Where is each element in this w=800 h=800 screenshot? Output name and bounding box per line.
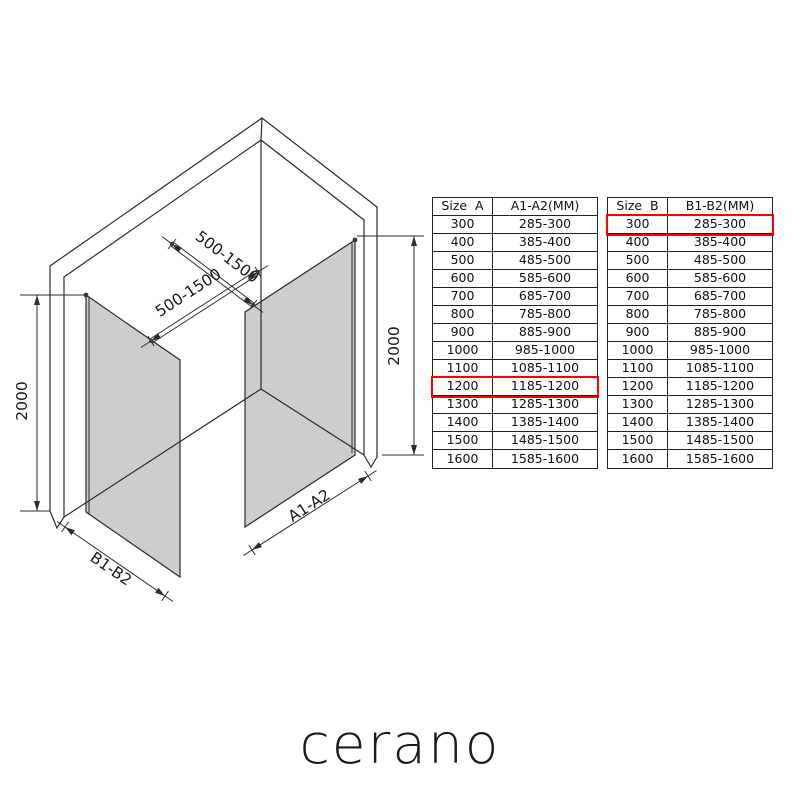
table-cell: 985-1000 xyxy=(668,342,772,359)
panel-b-width-label: B1-B2 xyxy=(87,548,135,589)
column-header: Size B xyxy=(608,198,668,215)
table-cell: 1300 xyxy=(433,396,493,413)
table-cell: 400 xyxy=(608,234,668,251)
table-cell: 700 xyxy=(433,288,493,305)
table-cell: 1400 xyxy=(433,414,493,431)
size-table-a: Size AA1-A2(MM)300285-300400385-40050048… xyxy=(432,197,598,469)
table-cell: 1185-1200 xyxy=(668,378,772,395)
table-cell: 685-700 xyxy=(493,288,597,305)
table-cell: 885-900 xyxy=(493,324,597,341)
table-row: 13001285-1300 xyxy=(608,396,772,414)
left-wall-edge xyxy=(50,266,64,528)
table-row: 12001185-1200 xyxy=(433,378,597,396)
table-row: 16001585-1600 xyxy=(608,450,772,468)
table-row: 500485-500 xyxy=(433,252,597,270)
table-cell: 800 xyxy=(433,306,493,323)
table-cell: 385-400 xyxy=(493,234,597,251)
table-header-row: Size AA1-A2(MM) xyxy=(433,198,597,216)
brand-logo: cerano xyxy=(0,712,800,776)
table-cell: 285-300 xyxy=(493,216,597,233)
column-header: A1-A2(MM) xyxy=(493,198,597,215)
table-row: 700685-700 xyxy=(433,288,597,306)
table-cell: 500 xyxy=(608,252,668,269)
table-cell: 900 xyxy=(608,324,668,341)
table-cell: 1000 xyxy=(433,342,493,359)
wall-bracket-right xyxy=(353,238,358,243)
table-cell: 285-300 xyxy=(668,216,772,233)
table-row: 400385-400 xyxy=(433,234,597,252)
table-row: 13001285-1300 xyxy=(433,396,597,414)
height-label-left: 2000 xyxy=(13,381,31,420)
table-row: 700685-700 xyxy=(608,288,772,306)
table-cell: 1485-1500 xyxy=(493,432,597,449)
table-cell: 785-800 xyxy=(493,306,597,323)
table-cell: 1085-1100 xyxy=(668,360,772,377)
table-cell: 1400 xyxy=(608,414,668,431)
table-row: 11001085-1100 xyxy=(433,360,597,378)
table-cell: 1285-1300 xyxy=(668,396,772,413)
table-cell: 300 xyxy=(608,216,668,233)
table-row: 300285-300 xyxy=(608,216,772,234)
table-cell: 685-700 xyxy=(668,288,772,305)
size-table-b: Size BB1-B2(MM)300285-300400385-40050048… xyxy=(607,197,773,469)
table-cell: 785-800 xyxy=(668,306,772,323)
right-wall-edge xyxy=(364,207,377,467)
table-row: 600585-600 xyxy=(608,270,772,288)
table-row: 400385-400 xyxy=(608,234,772,252)
table-cell: 800 xyxy=(608,306,668,323)
table-row: 11001085-1100 xyxy=(608,360,772,378)
table-cell: 1585-1600 xyxy=(668,450,772,468)
table-cell: 1600 xyxy=(608,450,668,468)
table-row: 14001385-1400 xyxy=(433,414,597,432)
table-cell: 585-600 xyxy=(493,270,597,287)
table-cell: 385-400 xyxy=(668,234,772,251)
table-row: 15001485-1500 xyxy=(433,432,597,450)
table-cell: 1085-1100 xyxy=(493,360,597,377)
table-row: 800785-800 xyxy=(608,306,772,324)
table-cell: 1000 xyxy=(608,342,668,359)
table-header-row: Size BB1-B2(MM) xyxy=(608,198,772,216)
product-spec-sheet: 500-1500 500-1500 2000 2000 xyxy=(0,0,800,800)
table-cell: 1500 xyxy=(433,432,493,449)
table-cell: 585-600 xyxy=(668,270,772,287)
table-cell: 985-1000 xyxy=(493,342,597,359)
table-cell: 1185-1200 xyxy=(493,378,597,395)
column-header: B1-B2(MM) xyxy=(668,198,772,215)
bar-length-label-bottom: 500-1500 xyxy=(152,265,224,321)
table-row: 900885-900 xyxy=(433,324,597,342)
table-cell: 1300 xyxy=(608,396,668,413)
table-cell: 900 xyxy=(433,324,493,341)
table-row: 600585-600 xyxy=(433,270,597,288)
table-cell: 300 xyxy=(433,216,493,233)
column-header: Size A xyxy=(433,198,493,215)
table-cell: 1585-1600 xyxy=(493,450,597,468)
table-row: 14001385-1400 xyxy=(608,414,772,432)
table-row: 1000985-1000 xyxy=(608,342,772,360)
dim-height-right: 2000 xyxy=(357,236,424,455)
table-row: 12001185-1200 xyxy=(608,378,772,396)
table-cell: 500 xyxy=(433,252,493,269)
table-cell: 1600 xyxy=(433,450,493,468)
table-cell: 600 xyxy=(608,270,668,287)
table-cell: 1200 xyxy=(608,378,668,395)
table-row: 900885-900 xyxy=(608,324,772,342)
table-cell: 1485-1500 xyxy=(668,432,772,449)
table-row: 15001485-1500 xyxy=(608,432,772,450)
table-row: 16001585-1600 xyxy=(433,450,597,468)
table-cell: 1385-1400 xyxy=(668,414,772,431)
table-cell: 485-500 xyxy=(493,252,597,269)
left-glass-panel xyxy=(86,295,180,577)
table-cell: 600 xyxy=(433,270,493,287)
height-label-right: 2000 xyxy=(385,326,403,365)
table-cell: 1200 xyxy=(433,378,493,395)
table-cell: 1500 xyxy=(608,432,668,449)
table-cell: 1100 xyxy=(433,360,493,377)
table-cell: 1285-1300 xyxy=(493,396,597,413)
glass-panels xyxy=(84,238,358,577)
table-cell: 485-500 xyxy=(668,252,772,269)
table-cell: 1100 xyxy=(608,360,668,377)
table-row: 500485-500 xyxy=(608,252,772,270)
table-cell: 885-900 xyxy=(668,324,772,341)
table-cell: 700 xyxy=(608,288,668,305)
table-cell: 400 xyxy=(433,234,493,251)
table-row: 300285-300 xyxy=(433,216,597,234)
table-cell: 1385-1400 xyxy=(493,414,597,431)
table-row: 1000985-1000 xyxy=(433,342,597,360)
table-row: 800785-800 xyxy=(433,306,597,324)
